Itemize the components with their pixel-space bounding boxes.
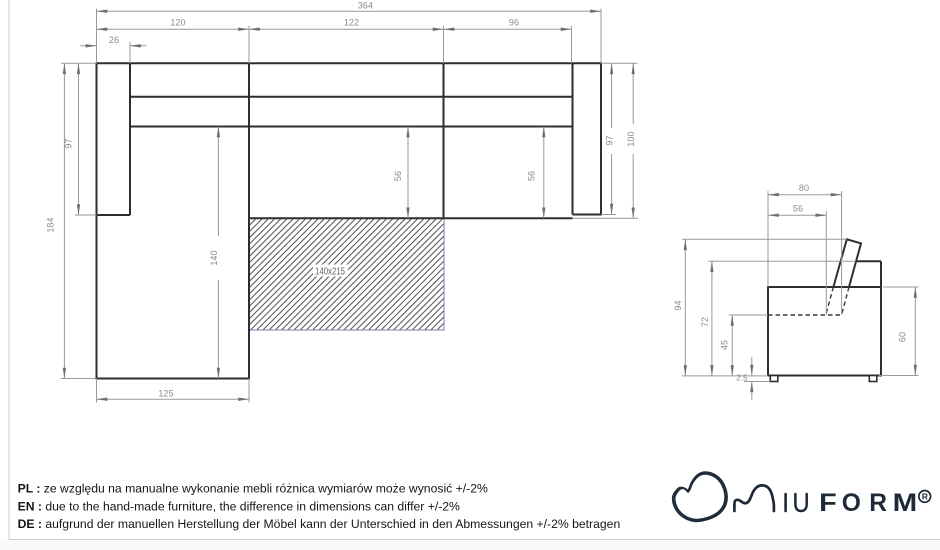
svg-text:120: 120 [170, 17, 185, 27]
svg-text:184: 184 [46, 217, 56, 232]
svg-text:R: R [922, 492, 928, 502]
svg-text:26: 26 [109, 35, 119, 45]
svg-text:140x215: 140x215 [315, 266, 345, 277]
svg-text:364: 364 [358, 0, 373, 10]
svg-text:R: R [869, 490, 887, 517]
svg-text:EN : due to the hand-made furn: EN : due to the hand-made furniture, the… [18, 500, 460, 514]
svg-text:O: O [842, 490, 861, 517]
svg-text:80: 80 [799, 183, 809, 193]
svg-text:94: 94 [673, 300, 683, 310]
svg-text:56: 56 [527, 171, 537, 181]
svg-text:122: 122 [344, 17, 359, 27]
svg-text:PL : ze względu na manualne wy: PL : ze względu na manualne wykonanie me… [18, 482, 488, 496]
svg-text:M: M [893, 488, 918, 516]
svg-text:60: 60 [898, 332, 908, 342]
svg-text:2.5: 2.5 [736, 374, 748, 383]
svg-text:100: 100 [626, 131, 636, 146]
svg-text:DE : aufgrund der manuellen He: DE : aufgrund der manuellen Herstellung … [18, 517, 621, 531]
svg-text:F: F [819, 489, 837, 517]
svg-text:125: 125 [158, 389, 173, 399]
svg-text:56: 56 [793, 204, 803, 214]
svg-text:97: 97 [605, 135, 615, 145]
svg-text:96: 96 [509, 17, 519, 27]
svg-text:45: 45 [720, 340, 730, 350]
svg-text:56: 56 [393, 171, 403, 181]
svg-text:140: 140 [209, 250, 219, 265]
svg-text:97: 97 [64, 138, 74, 148]
svg-text:72: 72 [700, 317, 710, 327]
